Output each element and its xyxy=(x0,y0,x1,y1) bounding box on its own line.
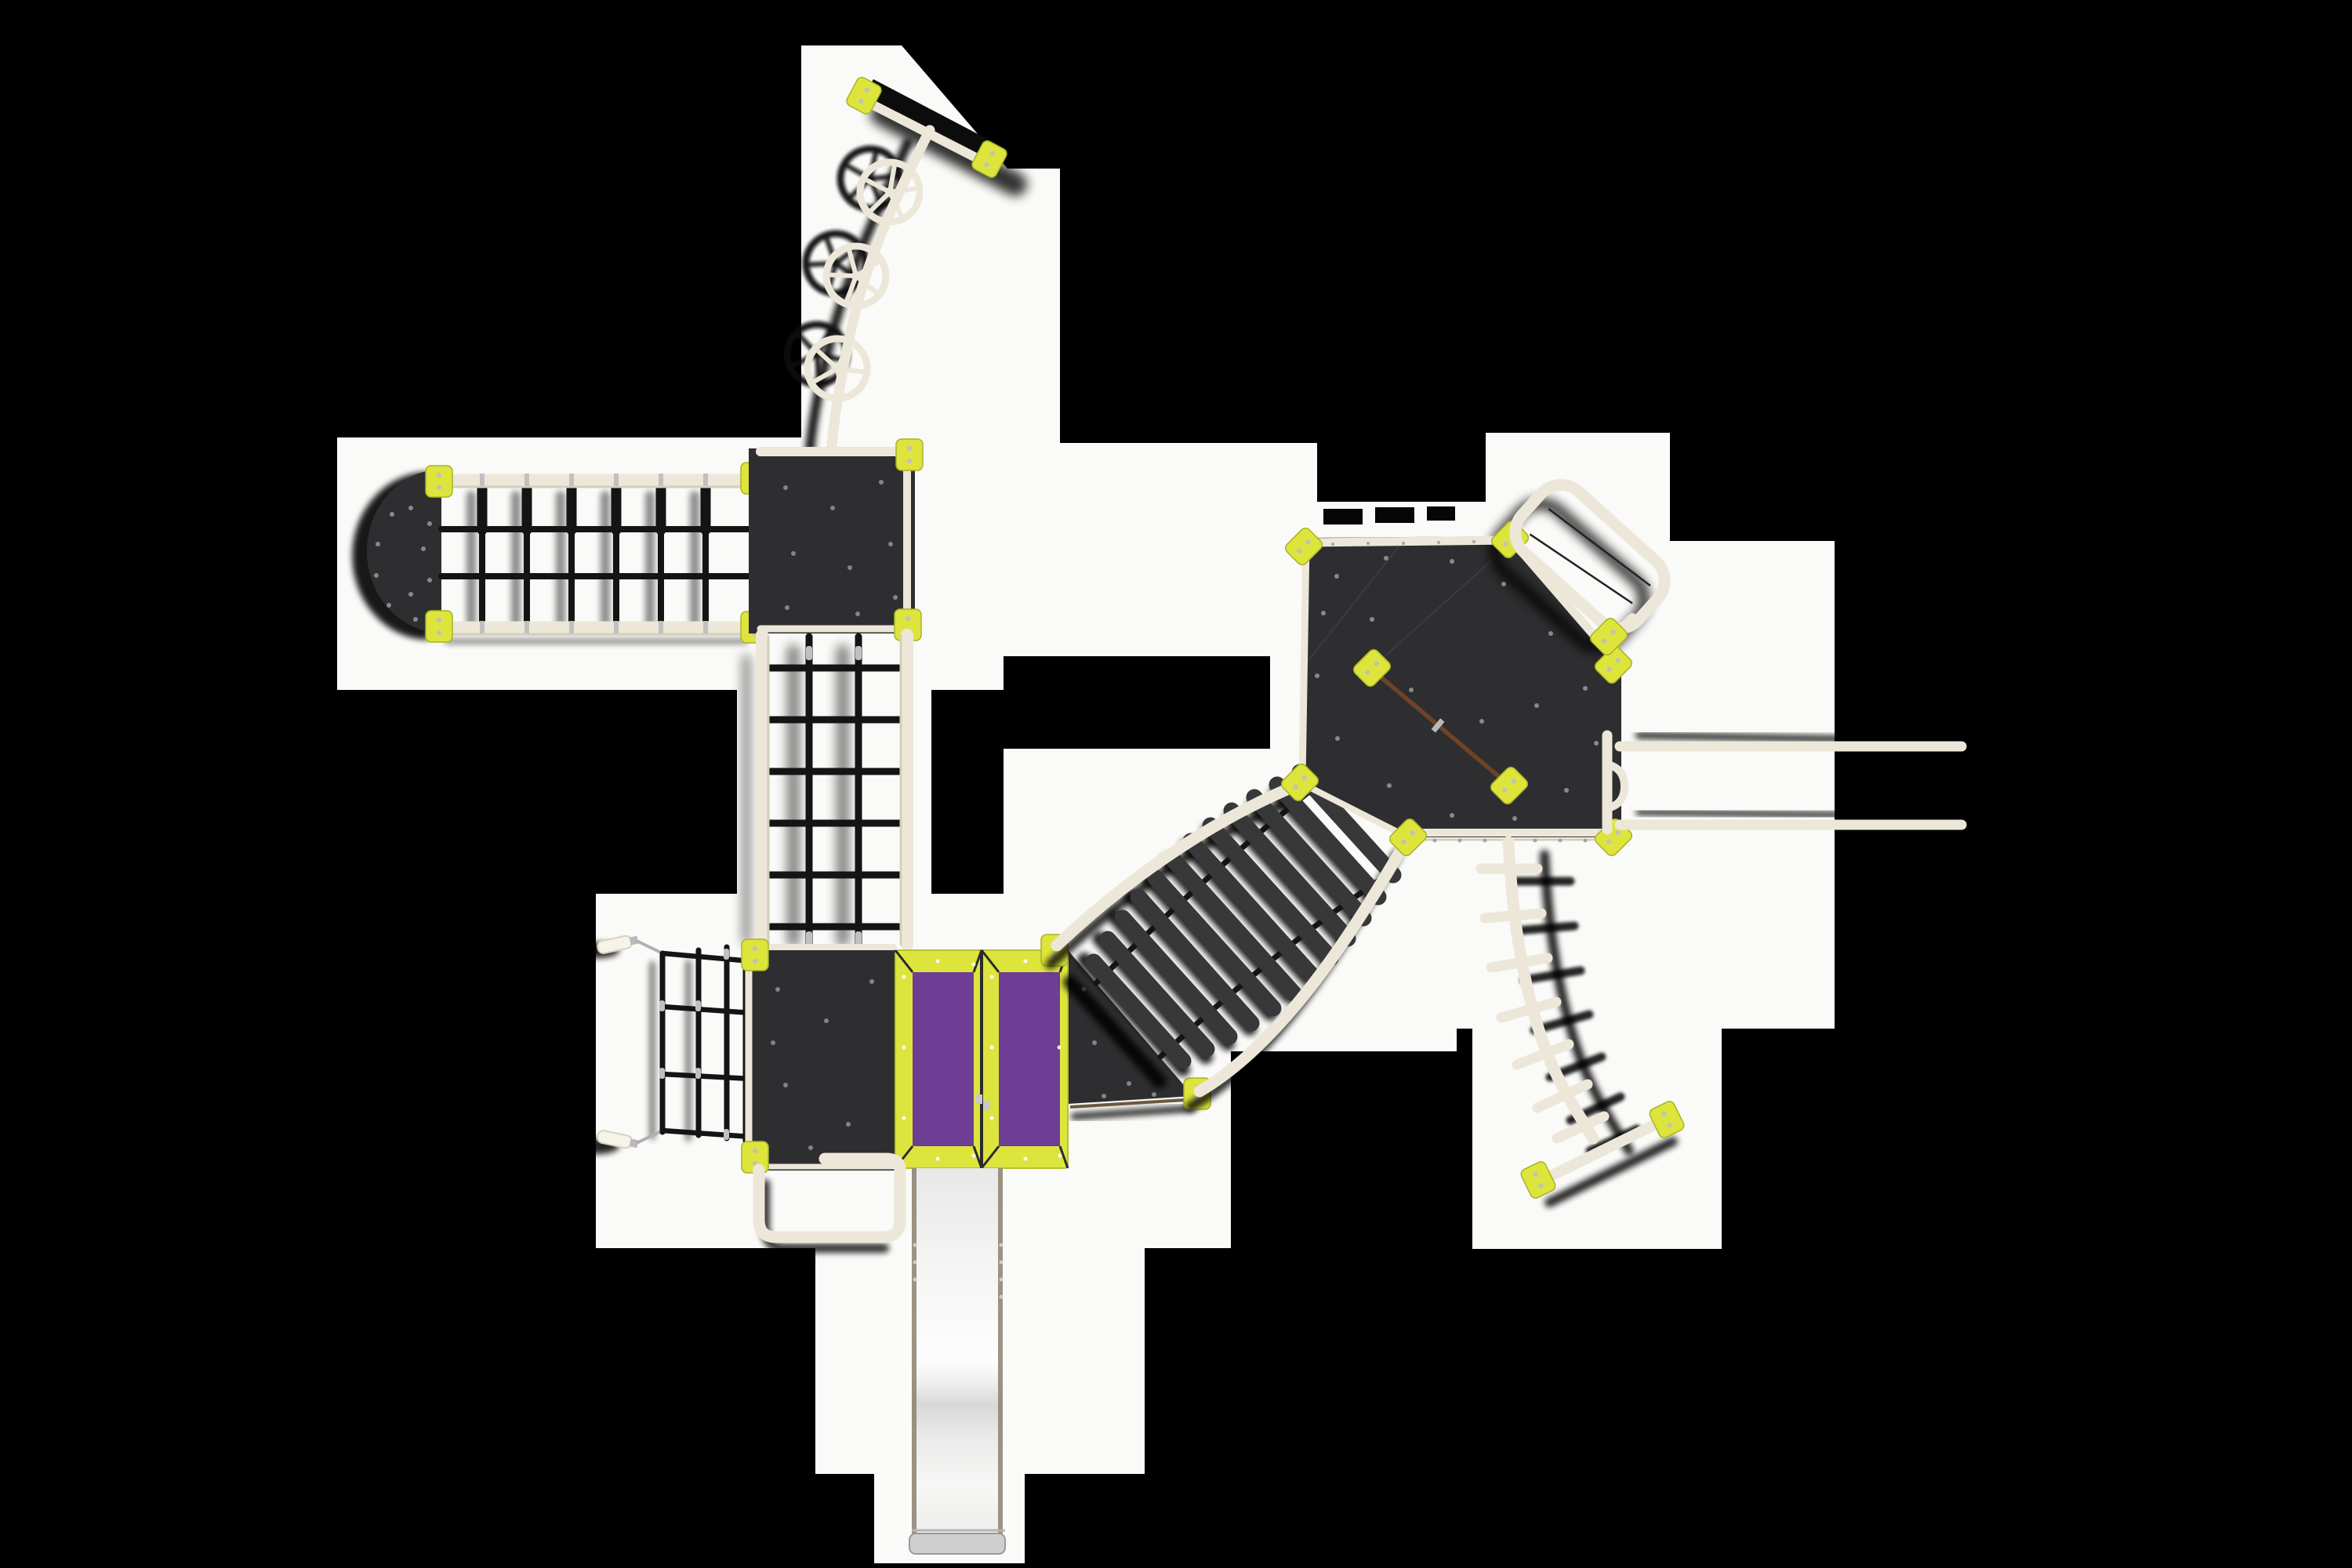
purple-panel xyxy=(913,972,974,1146)
purple-panel xyxy=(999,972,1060,1146)
corner-clamp xyxy=(426,611,452,642)
panel-doors xyxy=(895,950,1068,1168)
square-platform xyxy=(749,439,923,641)
corner-clamp xyxy=(742,939,768,971)
slide-bed xyxy=(912,1168,1003,1538)
corner-clamp xyxy=(426,466,452,497)
corner-clamp xyxy=(896,439,923,470)
slide xyxy=(908,1168,1007,1554)
playground-topview-render[interactable] xyxy=(0,0,2352,1568)
slide-end-lip xyxy=(909,1534,1005,1554)
slide-side-rail xyxy=(912,1168,916,1538)
slide-side-rail xyxy=(998,1168,1003,1538)
